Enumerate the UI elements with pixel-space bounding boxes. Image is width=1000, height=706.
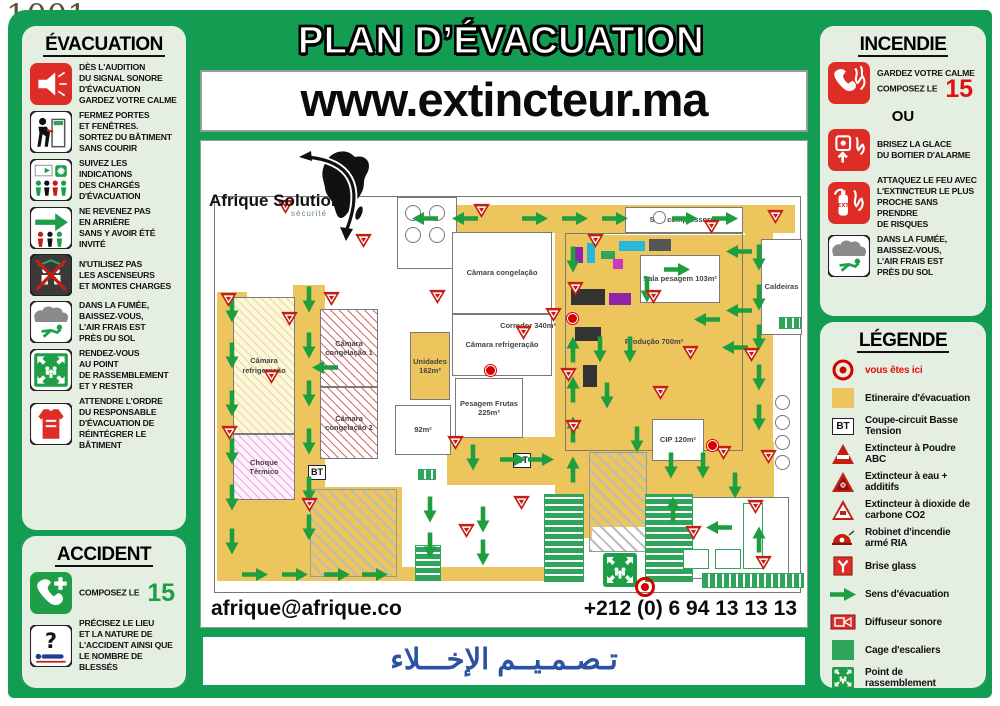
plan-room: Pesagem Frutas 225m² [455, 378, 523, 438]
evacuation-arrow [601, 383, 614, 409]
legend-item: Sens d'évacuation [830, 582, 976, 606]
room-label: Câmara congelação [466, 267, 539, 278]
room-label: Câmara congelação 2 [321, 413, 377, 434]
evacuation-arrow [694, 313, 720, 326]
accident-advise-text: PRÉCISEZ LE LIEU ET LA NATURE DE L'ACCID… [79, 618, 178, 673]
furniture [715, 549, 741, 569]
evacuation-arrow [226, 529, 239, 555]
plan-room: Unidades 162m² [410, 332, 450, 400]
evacuation-item-text: DANS LA FUMÉE, BAISSEZ-VOUS, L'AIR FRAIS… [79, 300, 149, 344]
machinery [601, 251, 615, 259]
hatched-area [589, 452, 647, 552]
evacuation-arrow [726, 304, 752, 317]
legend-item: BT Coupe-circuit Basse Tension [830, 414, 976, 438]
evacuation-item: RENDEZ-VOUS AU POINT DE RASSEMBLEMENT ET… [30, 348, 178, 392]
evacuation-arrow [362, 568, 388, 581]
legend-item: Point de rassemblement [830, 666, 976, 690]
room-label: Pesagem Frutas 225m² [456, 398, 522, 419]
plan-room: Câmara congelação 1 [320, 309, 378, 387]
incendie-glass-row: BRISEZ LA GLACE DU BOITIER D'ALARME [828, 129, 978, 171]
emergency-phone-icon [30, 572, 72, 614]
you-are-here-icon [830, 358, 856, 382]
legend-label: Coupe-circuit Basse Tension [865, 415, 976, 437]
assembly-point-icon [30, 349, 72, 391]
company-logo: Afrique Solution sécurité [207, 145, 419, 243]
evacuation-item-text: RENDEZ-VOUS AU POINT DE RASSEMBLEMENT ET… [79, 348, 168, 392]
question-icon: ? [30, 625, 72, 667]
incendie-attack-row: EXT ATTAQUEZ LE FEU AVEC L'EXTINCTEUR LE… [828, 175, 978, 230]
plan-room: Câmara congelação 2 [320, 387, 378, 459]
legend-item: Extincteur à eau + additifs [830, 470, 976, 494]
evacuation-arrow [706, 521, 732, 534]
logo-tagline: sécurité [291, 209, 327, 218]
accident-title: ACCIDENT [28, 544, 180, 566]
rassemblement-icon [830, 666, 856, 690]
extinguisher-marker [429, 289, 446, 304]
extinguisher-icon: EXT [828, 182, 870, 224]
legend-label: Diffuseur sonore [865, 617, 942, 628]
evacuation-item: DÈS L'AUDITION DU SIGNAL SONORE D'ÉVACUA… [30, 62, 178, 106]
evacuation-arrow [477, 540, 490, 566]
evacuation-arrow [624, 337, 637, 363]
no-elevator-icon [30, 254, 72, 296]
evacuation-item: NE REVENEZ PAS EN ARRIÈRE SANS Y AVOIR É… [30, 206, 178, 250]
bt-box-icon: BT [830, 414, 856, 438]
extinguisher-marker [645, 289, 662, 304]
smoke-low-icon [828, 235, 870, 277]
room-label: 92m² [413, 424, 433, 435]
evacuation-item-text: NE REVENEZ PAS EN ARRIÈRE SANS Y AVOIR É… [79, 206, 178, 250]
legend-label: Etineraire d'évacuation [865, 393, 970, 404]
incendie-call-text: GARDEZ VOTRE CALME COMPOSEZ LE15 [877, 68, 975, 99]
diffuseur-icon [830, 610, 856, 634]
extinguisher-marker [760, 449, 777, 464]
evacuation-arrow [282, 568, 308, 581]
incendie-smoke-text: DANS LA FUMÉE, BAISSEZ-VOUS, L'AIR FRAIS… [877, 234, 947, 278]
accident-advise-row: ? PRÉCISEZ LE LIEU ET LA NATURE DE L'ACC… [30, 618, 178, 673]
evacuation-item-text: DÈS L'AUDITION DU SIGNAL SONORE D'ÉVACUA… [79, 62, 177, 106]
svg-text:EXT: EXT [838, 203, 850, 209]
contact-email: afrique@afrique.co [211, 597, 402, 621]
evacuation-arrow [303, 287, 316, 313]
extinguisher-marker [515, 325, 532, 340]
legend-label: vous êtes ici [865, 365, 922, 376]
evacuation-item-text: N'UTILISEZ PAS LES ASCENSEURS ET MONTES … [79, 259, 171, 292]
hatched-area [310, 489, 397, 577]
warden-vest-icon [30, 403, 72, 445]
legend-item: Extincteur à dioxide de carbone CO2 [830, 498, 976, 522]
extinguisher-marker [447, 435, 464, 450]
sens-arrow-icon [830, 582, 856, 606]
legende-panel: LÉGENDE vous êtes ici Etineraire d'évacu… [820, 322, 986, 688]
route-square-icon [830, 386, 856, 410]
evacuation-arrow [726, 245, 752, 258]
website-banner: www.extincteur.ma [200, 70, 808, 132]
legend-item: vous êtes ici [830, 358, 976, 382]
accident-panel: ACCIDENT COMPOSEZ LE15 ? PRÉCISEZ LE LIE… [22, 536, 186, 688]
extinguisher-marker [755, 555, 772, 570]
evacuation-item: N'UTILISEZ PAS LES ASCENSEURS ET MONTES … [30, 254, 178, 296]
extinguisher-marker [473, 203, 490, 218]
accident-number: 15 [147, 579, 174, 607]
extinguisher-marker [567, 281, 584, 296]
extinguisher-marker [767, 209, 784, 224]
assembly-point-marker [603, 553, 637, 587]
evacuation-arrow [753, 245, 766, 271]
evacuation-arrow [664, 263, 690, 276]
machinery [613, 259, 623, 269]
evacuation-arrow [303, 381, 316, 407]
brise-glass-icon [830, 554, 856, 578]
evacuation-arrow [562, 212, 588, 225]
sounder-marker [485, 365, 496, 376]
extinguisher-marker [743, 347, 760, 362]
incendie-glass-text: BRISEZ LA GLACE DU BOITIER D'ALARME [877, 139, 970, 161]
evacuation-arrow [303, 333, 316, 359]
evacuation-item-text: FERMEZ PORTES ET FENÊTRES. SORTEZ DU BÂT… [79, 110, 172, 154]
legend-item: Brise glass [830, 554, 976, 578]
plan-content-box: Afrique Solution sécurité Câmara refrige… [200, 140, 808, 628]
incendie-title: INCENDIE [826, 34, 980, 56]
you-are-here-marker [635, 577, 655, 597]
room-label: Câmara refrigeração [465, 339, 540, 350]
evacuation-arrow [729, 473, 742, 499]
legend-item: Robinet d'incendie armé RIA [830, 526, 976, 550]
extinguisher-marker [220, 292, 237, 307]
legend-label: Brise glass [865, 561, 916, 572]
legend-label: Cage d'escaliers [865, 645, 940, 656]
ext-abc-icon [830, 442, 856, 466]
extinguisher-marker [747, 499, 764, 514]
evacuation-arrow [594, 337, 607, 363]
evacuation-arrow [424, 533, 437, 559]
stairwell [779, 317, 801, 329]
evacuation-item-text: ATTENDRE L'ORDRE DU RESPONSABLE D'ÉVACUA… [79, 396, 178, 451]
extinguisher-marker [652, 385, 669, 400]
evacuation-arrow [226, 391, 239, 417]
legend-label: Extincteur à Poudre ABC [865, 443, 976, 465]
evacuation-arrow [753, 405, 766, 431]
evacuation-arrow [226, 439, 239, 465]
sounder-marker [707, 440, 718, 451]
evacuation-arrow [753, 527, 766, 553]
room-label: Choque Térmico [234, 457, 294, 478]
extinguisher-marker [587, 233, 604, 248]
incendie-smoke-row: DANS LA FUMÉE, BAISSEZ-VOUS, L'AIR FRAIS… [828, 234, 978, 278]
break-glass-icon [828, 129, 870, 171]
evacuation-arrow [567, 337, 580, 363]
stairwell [702, 573, 804, 588]
equipment-circle [775, 395, 790, 410]
evacuation-arrow [522, 212, 548, 225]
or-label: OU [826, 108, 980, 125]
evacuation-arrow [303, 429, 316, 455]
legend-item: Cage d'escaliers [830, 638, 976, 662]
floor-plan: Câmara refrigeraçãoChoque TérmicoCâmara … [214, 196, 801, 593]
plan-room: 92m² [395, 405, 451, 455]
equipment-circle [429, 227, 445, 243]
extinguisher-marker [513, 495, 530, 510]
evacuation-item-text: SUIVEZ LES INDICATIONS DES CHARGÉS D'ÉVA… [79, 158, 178, 202]
evacuation-arrow [424, 497, 437, 523]
evacuation-arrow [324, 568, 350, 581]
legend-item: Etineraire d'évacuation [830, 386, 976, 410]
extinguisher-marker [263, 369, 280, 384]
sounder-marker [567, 313, 578, 324]
evacuation-arrow [226, 343, 239, 369]
evacuation-arrow [567, 457, 580, 483]
incendie-panel: INCENDIE GARDEZ VOTRE CALME COMPOSEZ LE1… [820, 26, 986, 316]
extinguisher-marker [545, 307, 562, 322]
evacuation-arrow [697, 453, 710, 479]
evacuation-arrow [528, 453, 554, 466]
ria-icon [830, 526, 856, 550]
legend-item: Extincteur à Poudre ABC [830, 442, 976, 466]
cage-escalier-icon [830, 638, 856, 662]
evacuation-arrow [672, 212, 698, 225]
legend-label: Extincteur à eau + additifs [865, 471, 976, 493]
plan-room: Câmara congelação [452, 232, 552, 314]
incendie-number: 15 [945, 75, 972, 103]
evacuation-arrow [667, 497, 680, 523]
evacuation-item: SUIVEZ LES INDICATIONS DES CHARGÉS D'ÉVA… [30, 158, 178, 202]
legend-label: Extincteur à dioxide de carbone CO2 [865, 499, 976, 521]
accident-call-text: COMPOSEZ LE15 [79, 583, 175, 603]
equipment-circle [653, 211, 666, 224]
logo-name: Afrique Solution [209, 191, 341, 211]
evacuation-arrow [602, 212, 628, 225]
ext-eau-icon [830, 470, 856, 494]
incendie-call-row: GARDEZ VOTRE CALME COMPOSEZ LE15 [828, 62, 978, 104]
legend-label: Sens d'évacuation [865, 589, 949, 600]
arabic-banner: تـصـمـيــم الإخـــلاء [200, 634, 808, 688]
page-title: PLAN D’ÉVACUATION [192, 20, 810, 63]
you-are-here-dot [641, 583, 649, 591]
equipment-circle [775, 455, 790, 470]
contact-phone: +212 (0) 6 94 13 13 13 [584, 597, 797, 621]
room-label: Câmara congelação 1 [321, 338, 377, 359]
evacuation-arrow [500, 453, 526, 466]
evacuation-arrow [242, 568, 268, 581]
stairwell [418, 469, 436, 480]
no-return-icon [30, 207, 72, 249]
evacuation-arrow [312, 361, 338, 374]
extinguisher-marker [323, 291, 340, 306]
evacuation-panel: ÉVACUATION DÈS L'AUDITION DU SIGNAL SONO… [22, 26, 186, 530]
evacuation-title: ÉVACUATION [28, 34, 180, 56]
follow-instructions-icon [30, 159, 72, 201]
smoke-low-icon [30, 301, 72, 343]
alarm-sound-icon [30, 63, 72, 105]
legend-label: Robinet d'incendie armé RIA [865, 527, 976, 549]
equipment-circle [775, 435, 790, 450]
extinguisher-marker [560, 367, 577, 382]
evacuation-arrow [303, 515, 316, 541]
evacuation-item: DANS LA FUMÉE, BAISSEZ-VOUS, L'AIR FRAIS… [30, 300, 178, 344]
fire-phone-icon [828, 62, 870, 104]
evacuation-arrow [477, 507, 490, 533]
extinguisher-marker [281, 311, 298, 326]
furniture [683, 549, 709, 569]
evacuation-arrow [567, 247, 580, 273]
extinguisher-marker [703, 219, 720, 234]
evacuation-arrow [226, 485, 239, 511]
machinery [649, 239, 671, 251]
room-label: Caldeiras [764, 281, 800, 292]
extinguisher-marker [682, 345, 699, 360]
extinguisher-marker [221, 425, 238, 440]
incendie-attack-text: ATTAQUEZ LE FEU AVEC L'EXTINCTEUR LE PLU… [877, 175, 978, 230]
machinery [609, 293, 631, 305]
plan-room: Choque Térmico [233, 434, 295, 500]
evacuation-arrow [753, 285, 766, 311]
evacuation-arrow [753, 365, 766, 391]
extinguisher-marker [565, 419, 582, 434]
extinguisher-marker [685, 525, 702, 540]
evacuation-item: ATTENDRE L'ORDRE DU RESPONSABLE D'ÉVACUA… [30, 396, 178, 451]
svg-text:?: ? [45, 629, 57, 653]
machinery [619, 241, 645, 251]
legend-label: Point de rassemblement [865, 667, 976, 689]
machinery [583, 365, 597, 387]
equipment-circle [775, 415, 790, 430]
evacuation-arrow [631, 427, 644, 453]
stairwell [544, 494, 584, 582]
legende-title: LÉGENDE [826, 330, 980, 352]
extinguisher-marker [458, 523, 475, 538]
room-label: CIP 120m² [659, 434, 697, 445]
legend-item: Diffuseur sonore [830, 610, 976, 634]
accident-call-row: COMPOSEZ LE15 [30, 572, 178, 614]
ext-co2-icon [830, 498, 856, 522]
evacuation-arrow [665, 453, 678, 479]
close-doors-icon [30, 111, 72, 153]
extinguisher-marker [301, 497, 318, 512]
evacuation-arrow [467, 445, 480, 471]
room-label: Unidades 162m² [411, 356, 449, 377]
evacuation-item: FERMEZ PORTES ET FENÊTRES. SORTEZ DU BÂT… [30, 110, 178, 154]
